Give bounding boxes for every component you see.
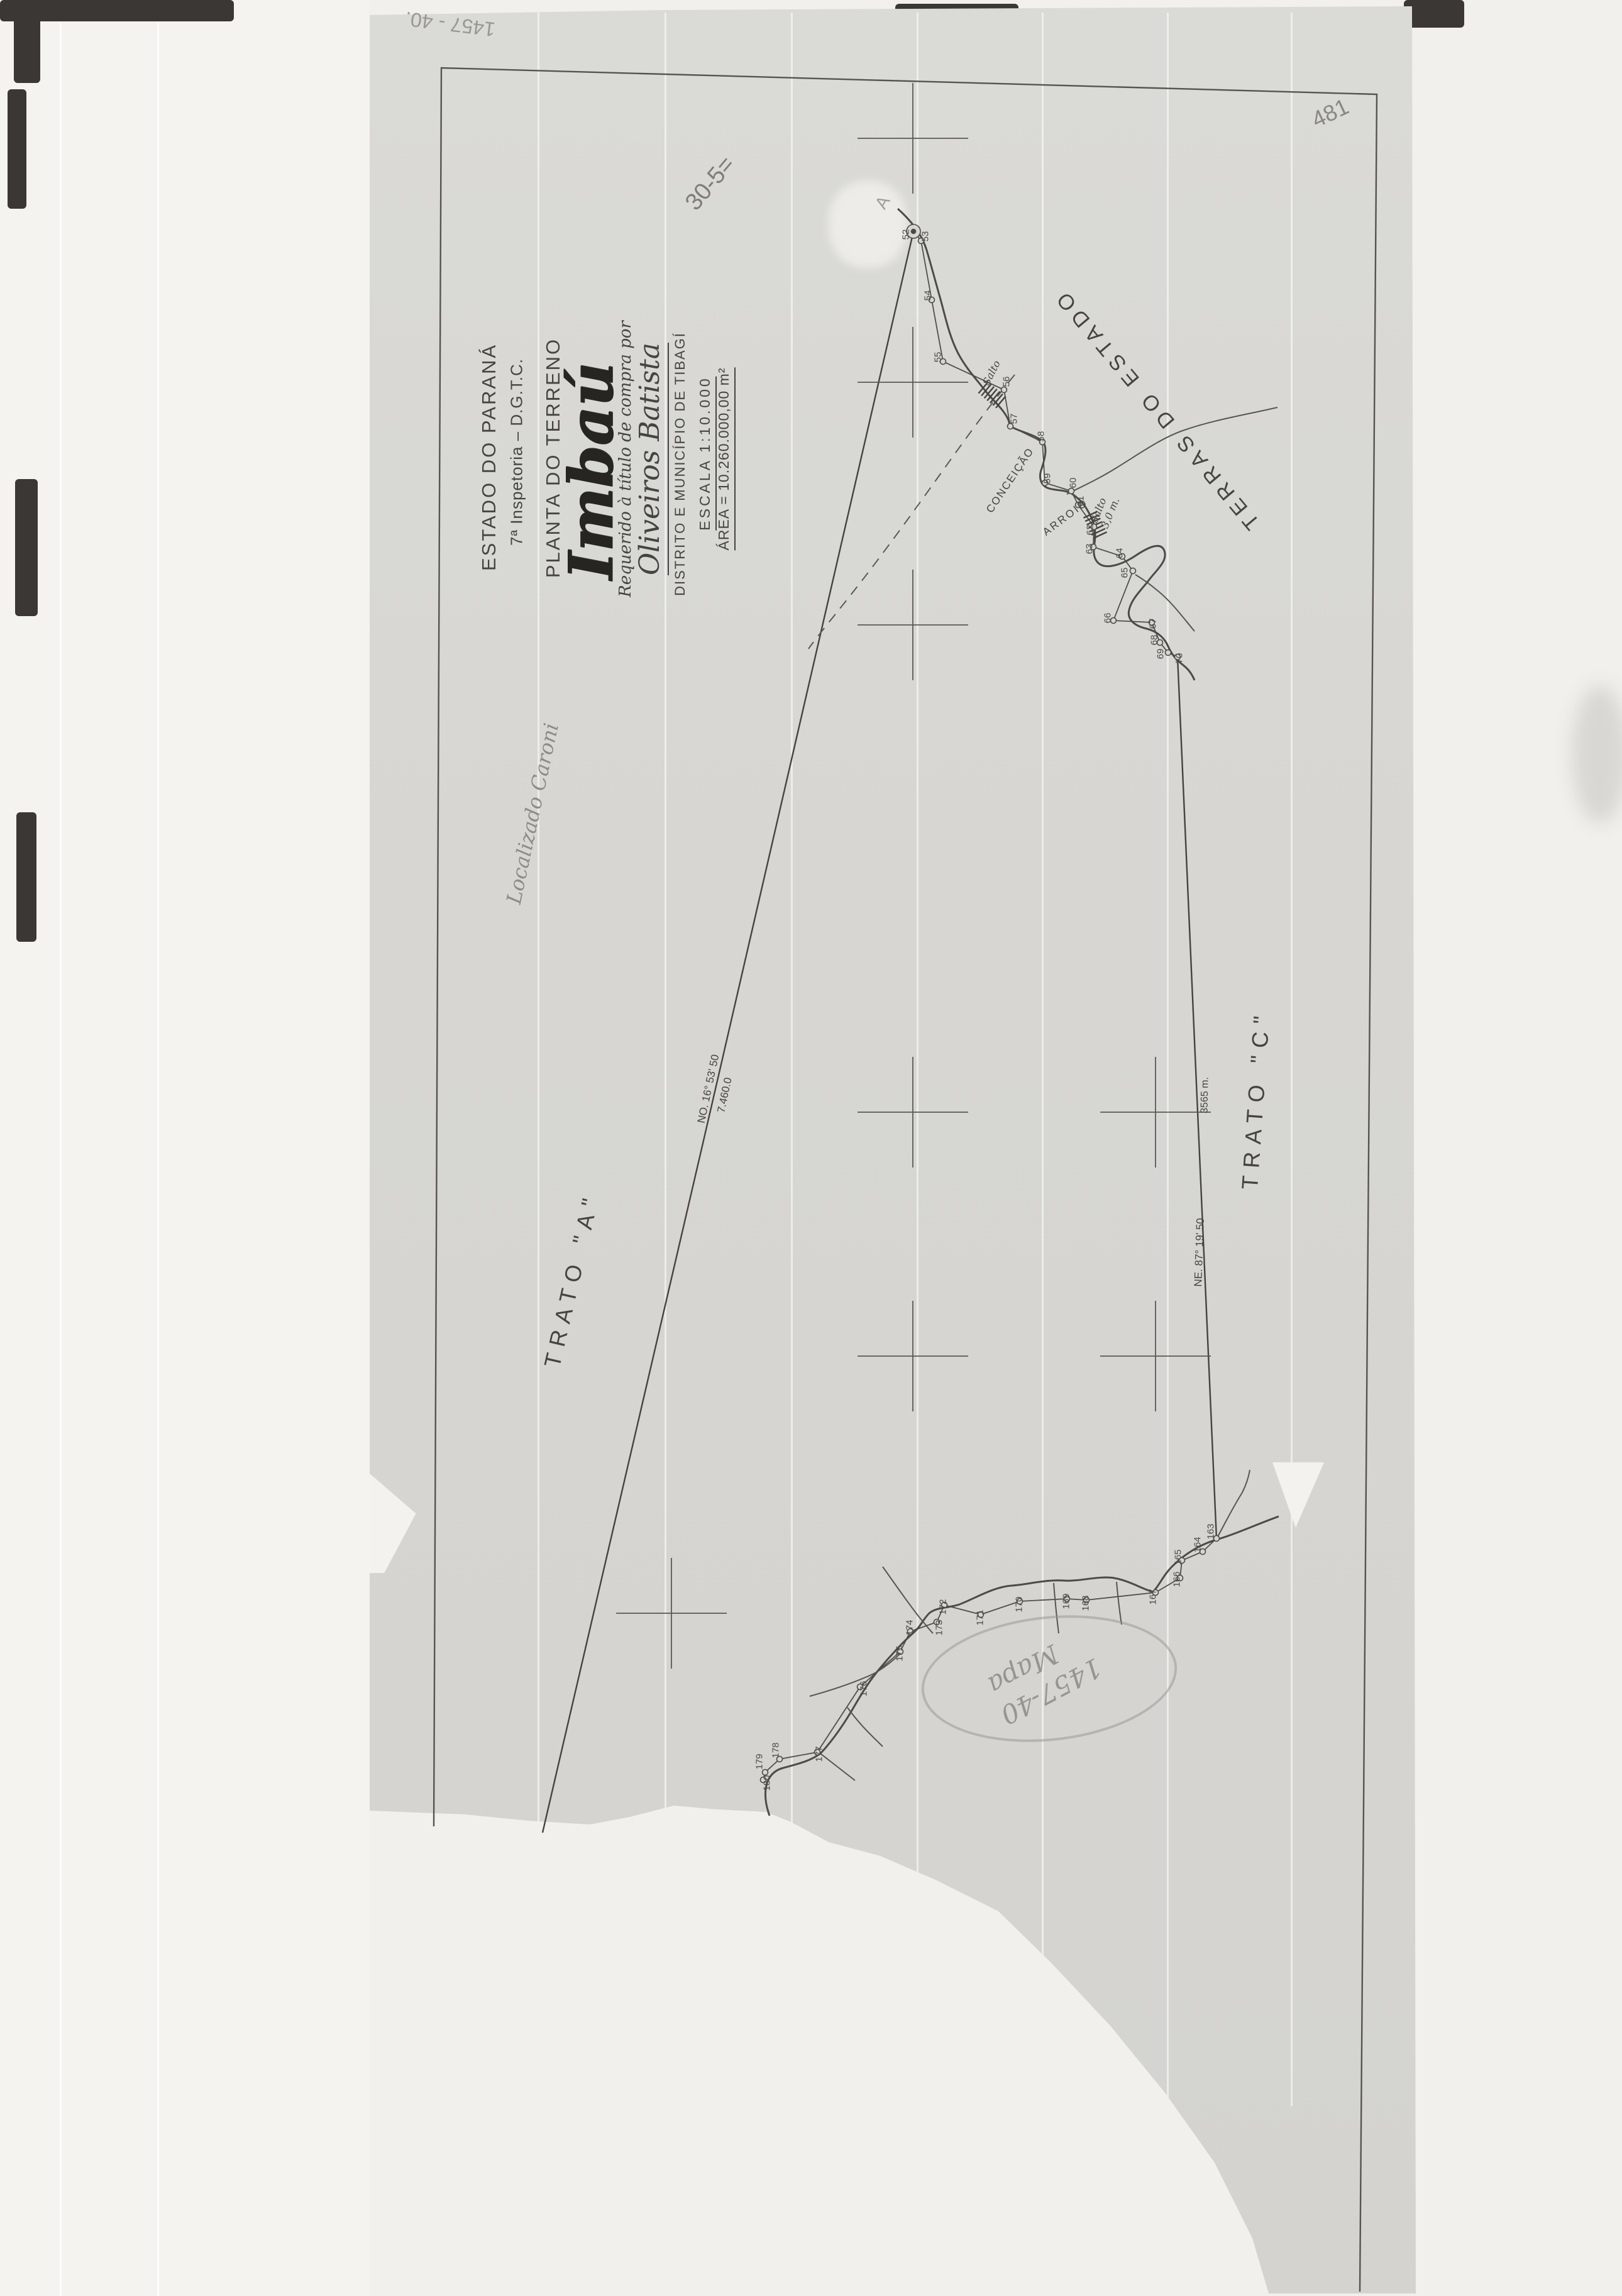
tributary [1117, 1582, 1122, 1625]
survey-point-label: 59 [1042, 473, 1053, 484]
survey-point-label: 171 [975, 1609, 986, 1625]
tributary [1217, 1470, 1250, 1538]
survey-point-label: 177 [814, 1746, 825, 1762]
survey-point-markers [761, 224, 1220, 1783]
survey-point-label: 174 [905, 1620, 915, 1635]
survey-point-label: 62 [1085, 525, 1096, 536]
survey-point-label: 163 [1206, 1523, 1216, 1539]
survey-point-label: 168 [1081, 1595, 1091, 1611]
survey-point-label: 170 [1014, 1596, 1025, 1612]
survey-point-label: 165 [1173, 1549, 1184, 1565]
registration-crosses [616, 83, 1211, 1669]
title-request-line: Requerido à título de compra por [616, 321, 635, 597]
survey-point-label: 64 [1115, 548, 1125, 559]
survey-point-label: 55 [933, 352, 944, 363]
survey-point-label: 169 [1061, 1593, 1072, 1609]
survey-point-label: 56 [1001, 377, 1012, 387]
survey-point-label: 173 [934, 1620, 945, 1635]
label-east-azimuth: NE. 87° 19' 50 [1192, 1218, 1207, 1287]
survey-point-label: 61 [1076, 496, 1086, 507]
title-district: DISTRITO E MUNICÍPIO DE TIBAGÍ [672, 332, 688, 596]
survey-point-label: 53 [920, 231, 931, 242]
survey-point-label: 164 [1193, 1537, 1203, 1552]
survey-point-label: 68 [1149, 635, 1160, 646]
survey-point-label: 166 [1172, 1571, 1183, 1587]
survey-point-label: 67 [1148, 619, 1159, 629]
map-linework [0, 0, 1622, 2296]
survey-point-label: 54 [923, 290, 934, 301]
survey-point-label: 52 [901, 229, 912, 240]
tributary [821, 1754, 855, 1780]
survey-point-label: 69 [1156, 649, 1166, 660]
survey-point-label: 180 [762, 1775, 773, 1791]
survey-point-label: 63 [1084, 544, 1095, 555]
title-area: ÁREA = 10.260.000,00 m² [715, 368, 736, 551]
survey-point-label: 175 [895, 1645, 905, 1661]
survey-point-label: 167 [1148, 1589, 1159, 1604]
survey-point-label: 178 [771, 1742, 781, 1758]
tributary [1135, 575, 1194, 631]
title-requester: Oliveiros Batista [634, 343, 669, 575]
survey-point-label: 66 [1103, 613, 1113, 624]
tributary [847, 1708, 883, 1747]
title-inspectorate: 7ª Inspetoria – D.G.T.C. [507, 358, 527, 546]
survey-point-label: 176 [859, 1681, 869, 1696]
survey-point-label: 70 [1174, 653, 1185, 664]
dashed-boundary [808, 375, 1015, 649]
survey-point-label: 179 [754, 1753, 765, 1769]
survey-point-label: 57 [1009, 414, 1020, 424]
survey-point-label: 58 [1036, 431, 1047, 442]
title-state: ESTADO DO PARANÁ [478, 345, 500, 571]
survey-point-label: 60 [1068, 478, 1079, 488]
label-east-distance: 3565 m. [1199, 1077, 1211, 1113]
upper-river [898, 209, 1194, 680]
scanned-map-page: { "page": { "archive_number": "481", "co… [0, 0, 1622, 2296]
title-scale: ESCALA 1:10.000 [697, 376, 717, 530]
survey-point-label: 172 [938, 1599, 949, 1614]
survey-point-label: 65 [1120, 568, 1130, 578]
